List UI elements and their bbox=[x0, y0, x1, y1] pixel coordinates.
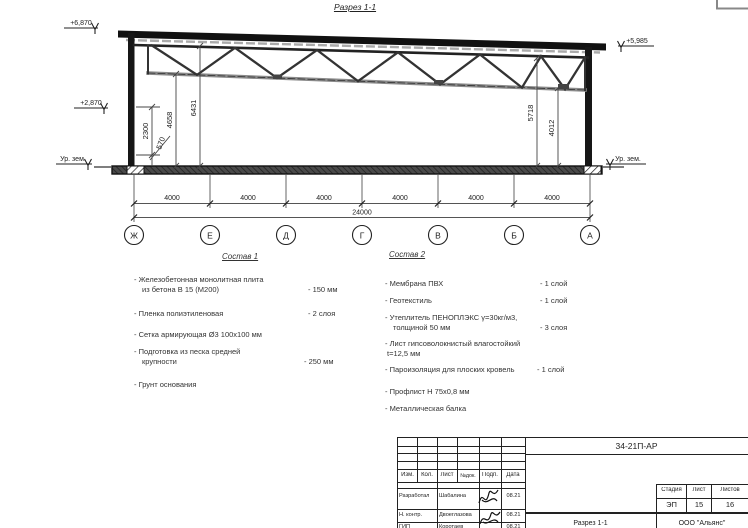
row-name: Шабалина bbox=[439, 493, 479, 499]
vertical-dimensions-right bbox=[534, 55, 561, 169]
ground-level-mark-left: Ур. зем. bbox=[56, 156, 92, 170]
sheet: Разрез 1-1 bbox=[0, 0, 748, 528]
frame-corner bbox=[717, 0, 748, 9]
list-item: - Металлическая балка bbox=[385, 404, 590, 414]
stamp-doc-title: Разрез 1-1 bbox=[525, 520, 656, 527]
dim-4658: 4658 bbox=[165, 112, 174, 129]
list-item: - Пленка полиэтиленовая - 2 слоя bbox=[134, 309, 384, 319]
span-dim-6: 4000 bbox=[544, 195, 560, 202]
span-dim-3: 4000 bbox=[316, 195, 332, 202]
elev-mid-left-text: +2,870 bbox=[80, 100, 102, 107]
list-item: - Профлист Н 75х0,8 мм bbox=[385, 387, 590, 397]
company-name: ООО "Альянс" bbox=[656, 520, 748, 527]
axis-label-zh: Ж bbox=[130, 231, 138, 241]
composition-1: Состав 1 - Железобетонная монолитная пли… bbox=[134, 248, 384, 398]
sheets-label: Листов bbox=[712, 487, 748, 493]
sheets-value: 16 bbox=[712, 500, 748, 509]
list-item: - Железобетонная монолитная плита из бет… bbox=[134, 275, 384, 295]
elevation-mark-top-left: +6,870 bbox=[64, 20, 99, 34]
composition-2: Состав 2 - Мембрана ПВХ - 1 слой - Геоте… bbox=[385, 248, 590, 418]
dim-570: 570 bbox=[154, 136, 167, 151]
right-column bbox=[585, 47, 592, 166]
span-dim-1: 4000 bbox=[164, 195, 180, 202]
list-item: - Подготовка из песка средней крупности … bbox=[134, 347, 384, 367]
dim-4012: 4012 bbox=[547, 120, 556, 137]
elev-top-right-text: +5,985 bbox=[626, 38, 648, 45]
row-name: Коротаев bbox=[439, 524, 479, 528]
left-column bbox=[128, 33, 135, 166]
list-item: - Утеплитель ПЕНОПЛЭКС γ=30кг/м3, толщин… bbox=[385, 313, 590, 333]
axis-label-b: Б bbox=[511, 231, 517, 241]
dim-2300: 2300 bbox=[141, 123, 150, 140]
elevation-mark-top-right: +5,985 bbox=[618, 38, 655, 52]
sheet-label: Лист bbox=[687, 487, 711, 493]
list-item: - Геотекстиль - 1 слой bbox=[385, 296, 590, 306]
list-item: - Сетка армирующая Ø3 100х100 мм bbox=[134, 330, 384, 340]
title-block: 34-21П-АР Изм. Кол. Лист №док. Подп. Дат… bbox=[397, 437, 748, 528]
elev-ground-right-text: Ур. зем. bbox=[615, 156, 641, 163]
row-name: Двоеглазова bbox=[439, 512, 479, 518]
axis-label-e: Е bbox=[207, 231, 213, 241]
stage-value: ЭП bbox=[657, 500, 686, 509]
row-role: ГИП bbox=[399, 524, 437, 528]
col-izm: Изм. bbox=[398, 472, 417, 478]
composition-2-title: Состав 2 bbox=[389, 250, 425, 260]
axis-label-v: В bbox=[435, 231, 441, 241]
col-podp: Подп. bbox=[479, 472, 501, 478]
elev-top-left-text: +6,870 bbox=[70, 20, 92, 27]
ground-level-mark-right: Ур. зем. bbox=[606, 156, 646, 170]
span-dim-4: 4000 bbox=[392, 195, 408, 202]
sheet-value: 15 bbox=[687, 500, 711, 509]
span-dim-2: 4000 bbox=[240, 195, 256, 202]
total-dim: 24000 bbox=[352, 210, 372, 217]
row-role: Разработал bbox=[399, 493, 437, 499]
elevation-mark-mid-left: +2,870 bbox=[74, 100, 108, 114]
floor-slab bbox=[94, 166, 624, 174]
composition-1-title: Состав 1 bbox=[222, 252, 258, 262]
signature-scribbles bbox=[476, 486, 506, 528]
col-kol: Кол. bbox=[417, 472, 437, 478]
dim-5718: 5718 bbox=[526, 105, 535, 122]
list-item: - Мембрана ПВХ - 1 слой bbox=[385, 279, 590, 289]
row-role: Н. контр. bbox=[399, 512, 437, 518]
roof-slab bbox=[118, 31, 606, 53]
span-dim-5: 4000 bbox=[468, 195, 484, 202]
elev-ground-left-text: Ур. зем. bbox=[60, 156, 86, 163]
list-item: - Грунт основания bbox=[134, 380, 384, 390]
col-list: Лист bbox=[437, 472, 457, 478]
stage-label: Стадия bbox=[657, 487, 686, 493]
list-item: - Лист гипсоволокнистый влагостойкий t=1… bbox=[385, 339, 590, 359]
col-ndok: №док. bbox=[457, 473, 479, 479]
axis-label-d: Д bbox=[283, 231, 289, 241]
doc-number: 34-21П-АР bbox=[525, 441, 748, 451]
axis-label-a: А bbox=[587, 231, 593, 241]
col-data: Дата bbox=[501, 472, 525, 478]
list-item: - Пароизоляция для плоских кровель - 1 с… bbox=[385, 365, 590, 375]
axis-label-g: Г bbox=[360, 231, 365, 241]
dim-6431: 6431 bbox=[189, 100, 198, 117]
axis-bubbles: Ж Е Д Г В Б А bbox=[125, 226, 600, 245]
roof-truss bbox=[134, 45, 588, 90]
